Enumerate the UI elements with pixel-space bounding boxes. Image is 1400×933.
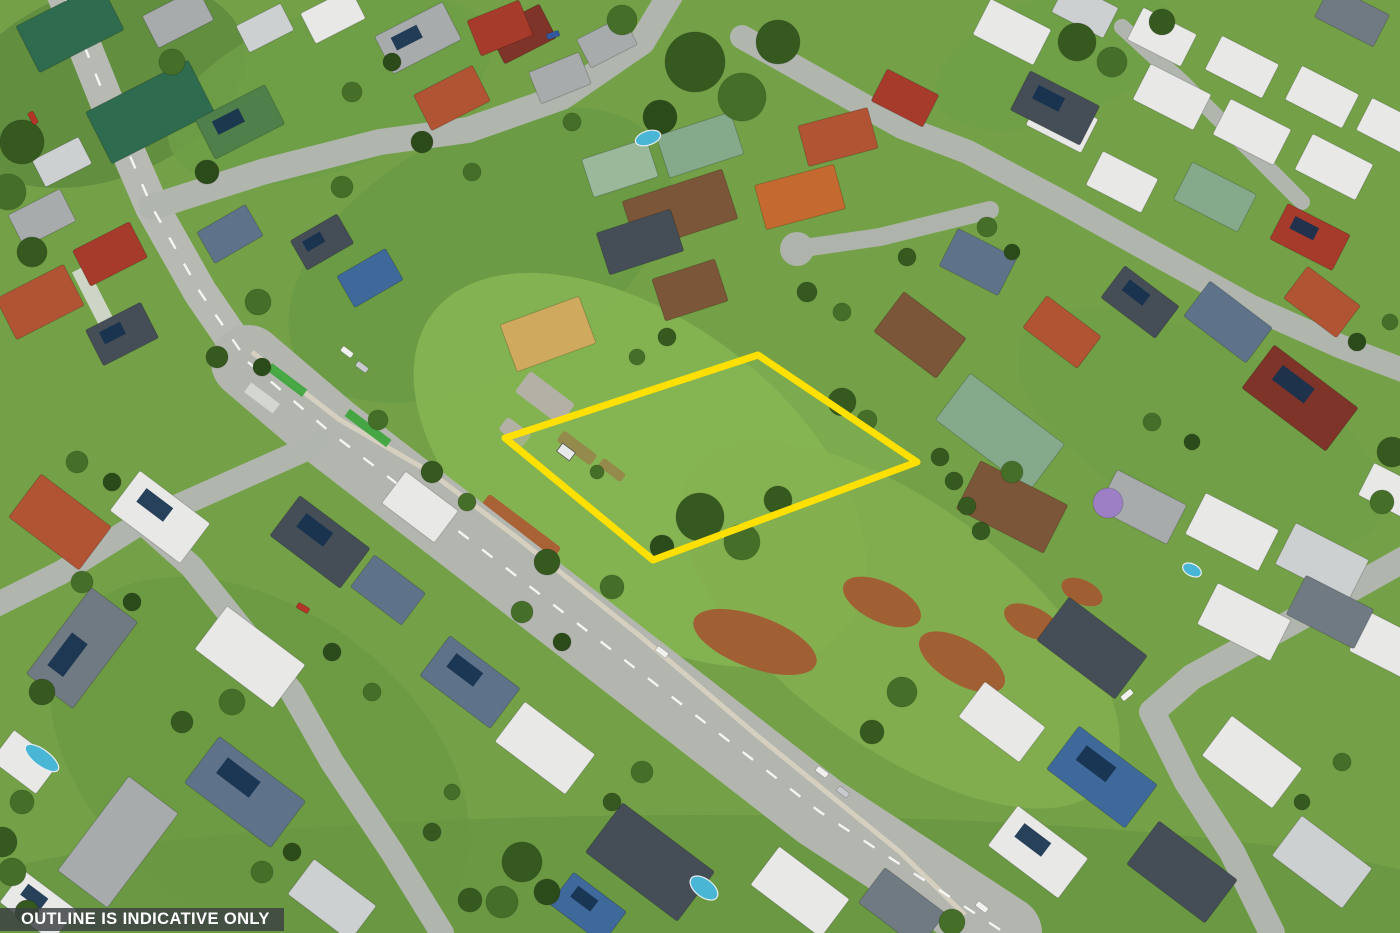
aerial-photo-scene bbox=[0, 0, 1400, 933]
aerial-photo: OUTLINE IS INDICATIVE ONLY bbox=[0, 0, 1400, 933]
disclaimer-bar: OUTLINE IS INDICATIVE ONLY bbox=[0, 908, 284, 931]
disclaimer-text: OUTLINE IS INDICATIVE ONLY bbox=[21, 911, 270, 928]
